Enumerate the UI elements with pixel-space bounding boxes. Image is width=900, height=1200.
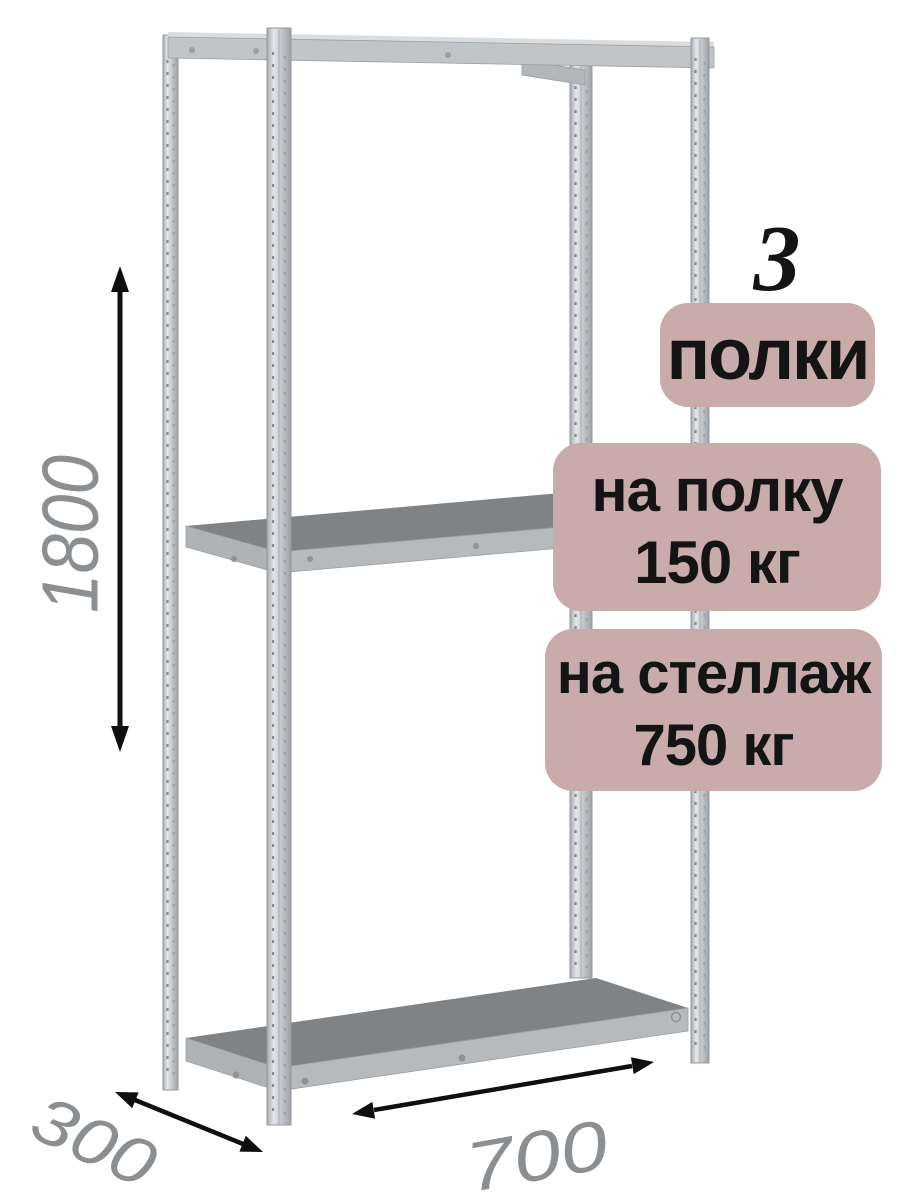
- post-back-left-body: [163, 35, 178, 1090]
- width-dimension-label: 700: [460, 1105, 613, 1200]
- shelf-load-title: на полку: [591, 455, 842, 527]
- shelf-load-badge: на полку 150 кг: [553, 443, 881, 611]
- bolt: [307, 556, 313, 562]
- product-shelving-diagram: 1800 300 700 3 полки на полку 150 кг на …: [0, 0, 900, 1200]
- bolt: [253, 48, 259, 54]
- shelf-count-badge: полки: [660, 303, 875, 407]
- depth-arrow-head-right: [239, 1136, 263, 1152]
- top-shelf: [168, 32, 714, 68]
- depth-arrow-head-left: [115, 1092, 139, 1108]
- bolt: [445, 52, 451, 58]
- depth-dimension-label: 300: [20, 1080, 168, 1200]
- shelf-count-number: 3: [712, 210, 842, 308]
- bolt: [189, 47, 195, 53]
- bolt: [459, 1055, 466, 1062]
- height-arrow-head-top: [111, 266, 129, 292]
- width-dimension: 700: [352, 1057, 654, 1200]
- width-arrow-line: [374, 1066, 632, 1110]
- bolt: [233, 1072, 240, 1079]
- bolt: [302, 1078, 309, 1085]
- bolt: [672, 1013, 681, 1022]
- shelf-load-value: 150 кг: [634, 527, 800, 599]
- post-back-left: [163, 35, 178, 1090]
- rack-load-title: на стеллаж: [557, 638, 870, 710]
- rack-load-badge: на стеллаж 750 кг: [545, 629, 882, 791]
- post-front-left: [267, 28, 291, 1125]
- shelf-count-label: полки: [667, 314, 869, 396]
- depth-dimension: 300: [20, 1080, 263, 1200]
- height-dimension: 1800: [26, 266, 130, 752]
- width-arrow-head-right: [631, 1057, 654, 1074]
- rack-load-value: 750 кг: [633, 710, 793, 782]
- bolt: [231, 556, 237, 562]
- width-arrow-head-left: [352, 1102, 375, 1119]
- bolt: [473, 543, 479, 549]
- height-dimension-label: 1800: [26, 455, 115, 613]
- bottom-shelf: [186, 978, 688, 1091]
- height-arrow-head-bottom: [111, 726, 129, 752]
